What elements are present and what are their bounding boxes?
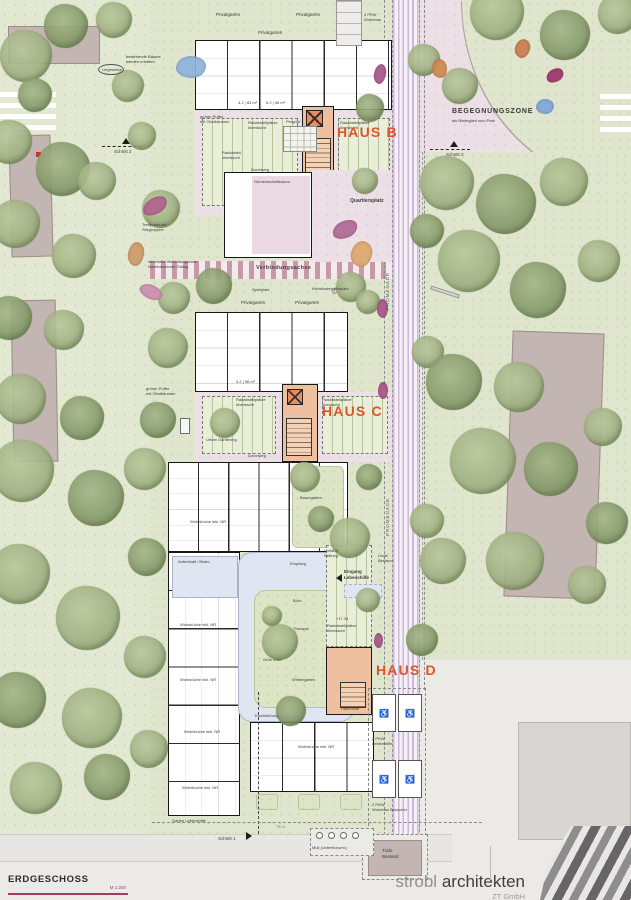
label-privatgarten: Privatgarten — [241, 300, 265, 306]
label-quartiersplatz: Quartiersplatz — [350, 198, 392, 204]
label-durchweg-b: Durchweg — [251, 167, 269, 172]
label-gruen-insel: Grün Insel — [263, 657, 281, 662]
label-promenade-2: PROMENADE — [385, 498, 390, 536]
planting-blob — [330, 216, 361, 242]
planting-blob — [349, 239, 375, 269]
entry-arrow — [336, 574, 342, 582]
label-privatgarten: Privatgarten — [216, 12, 240, 18]
planting-blob — [137, 281, 165, 304]
label-rad-kiwa: Rad/KiWa — [341, 706, 359, 711]
label-liegewiese: Liegewiese — [98, 64, 124, 75]
logo-word1: strobl — [396, 872, 438, 891]
label-level: +17.34 — [336, 616, 348, 621]
label-haus-b: HAUS B — [337, 124, 398, 140]
label-radabstell-c-left: Radabstellplätze überdacht — [236, 397, 282, 407]
label-wohnkueche: Wohnküche inkl. NR — [184, 729, 224, 734]
scale-label: M 1:200 — [92, 885, 126, 891]
planting-layer — [0, 0, 631, 900]
label-muell: Müll (Unterflurcont.) — [312, 845, 372, 850]
label-area-b2: 5.2 | 96 m² — [266, 100, 285, 105]
label-baumbestand: bestehende Bäume werden erhalten — [126, 54, 162, 64]
label-begegnungszone: BEGEGNUNGSZONE — [452, 108, 533, 117]
label-buero: Büro — [293, 598, 301, 603]
title-underline — [8, 893, 128, 895]
planting-blob — [140, 193, 171, 220]
label-wintergarten: Wintergarten — [292, 677, 315, 682]
label-begegnungszone-sub: als Bindeglied zum Park — [452, 118, 495, 123]
border-tick — [490, 846, 491, 880]
planting-blob — [536, 99, 554, 114]
label-trafo: Trafo Bestand — [382, 848, 399, 859]
label-wohnkueche: Wohnküche inkl. NR — [180, 677, 220, 682]
architect-logo: strobl architekten ZT GmbH — [370, 872, 525, 900]
planting-blob — [372, 63, 387, 85]
planting-blob — [378, 382, 388, 399]
logo-text: strobl architekten — [370, 872, 525, 892]
label-wohnkueche: Wohnküche inkl. NR — [182, 785, 222, 790]
label-radabstell-d: Radabstellplätze überdacht — [327, 623, 371, 633]
label-dim75: 75 m — [276, 824, 285, 829]
planting-blob — [126, 241, 145, 267]
label-pergola: Pergola — [286, 119, 300, 124]
label-spielplatz: Spielplatz — [252, 287, 269, 292]
label-aufenthalt: Aufenthalt / Bistro — [178, 559, 220, 564]
label-durchweg-c: Durchweg — [248, 453, 266, 458]
label-garten-lebenshilfe: Garten Lebenshilfe — [172, 818, 206, 823]
planting-blob — [430, 58, 448, 79]
logo-word2: architekten — [442, 872, 525, 891]
label-eingang-lebenshilfe: Eingang Lebenshilfe — [344, 569, 374, 580]
label-area-b1: 4.2 | 83 m² — [238, 100, 257, 105]
label-pkw2-lh: 2 PKW Lebenshilfe — [372, 736, 392, 746]
label-linde: Linde Bestand — [378, 553, 393, 563]
label-informell: informelle Verbindungszone Nachbarschaft… — [148, 259, 206, 269]
planting-blob — [176, 56, 206, 78]
label-pkw2-wb: 2 PKW Wohnbau Besucher — [372, 802, 416, 812]
label-schnitt2-west: Schnitt 2 — [114, 149, 132, 155]
label-privatgarten: Privatgarten — [258, 30, 282, 36]
label-promenade-1: PROMENADE — [385, 272, 390, 310]
label-haus-d: HAUS D — [376, 662, 437, 678]
label-wohnkueche: Wohnküche inkl. NR — [180, 622, 220, 627]
label-privatgarten: Privatgarten — [295, 300, 319, 306]
label-verbindungsachse: Verbindungsachse — [256, 265, 311, 272]
label-therapie: Therapie — [293, 626, 309, 631]
label-wohnkueche: Wohnküche inkl. NR — [190, 519, 230, 524]
label-schnitt1: Schnitt 1 — [218, 836, 236, 842]
label-gruener-puffer-2: grüner Puffer mit Obstbäumen — [146, 386, 182, 396]
label-privatgarten: Privatgarten — [296, 12, 320, 18]
label-area-c1: 4.2 | 96 m² — [236, 379, 255, 384]
label-wohnkueche: Wohnküche inkl. NR — [298, 744, 338, 749]
page-title: ERDGESCHOSS — [8, 874, 89, 885]
label-baumgarten: Baumgarten — [300, 495, 322, 500]
planting-blob — [513, 37, 532, 59]
label-haus-c: HAUS C — [322, 403, 383, 419]
site-plan: ♿ ♿ ♿ ♿ Privatgarten Privatgarten Privat… — [0, 0, 631, 900]
label-radabstell-short: Radabstell. überdacht — [222, 150, 252, 160]
logo-sub: ZT GmbH — [370, 892, 525, 900]
label-kleinkinderspielplatz: Kleinkinderspielplatz — [312, 286, 348, 291]
label-empfang: Empfang — [290, 561, 306, 566]
label-erschliessung: Erschließung — [255, 713, 278, 718]
label-gemeinschaftsraum: Gemeinschaftsraum — [254, 179, 298, 184]
planting-blob — [544, 66, 566, 86]
label-gruener-puffer-1: grüner Puffer mit Obstbäumen — [200, 114, 242, 124]
label-vorfahrt: Vorfahrt Rettung — [324, 548, 338, 558]
label-schnitt2-east: Schnitt 2 — [446, 152, 464, 158]
label-parking-north: 4 PKW Wohnbau — [364, 12, 388, 22]
planting-blob — [374, 633, 383, 648]
label-treffpunkt: Treffpunkt mit Sitzgruppen — [142, 222, 186, 232]
label-urban-gardening: Urban Gardening — [206, 437, 237, 442]
